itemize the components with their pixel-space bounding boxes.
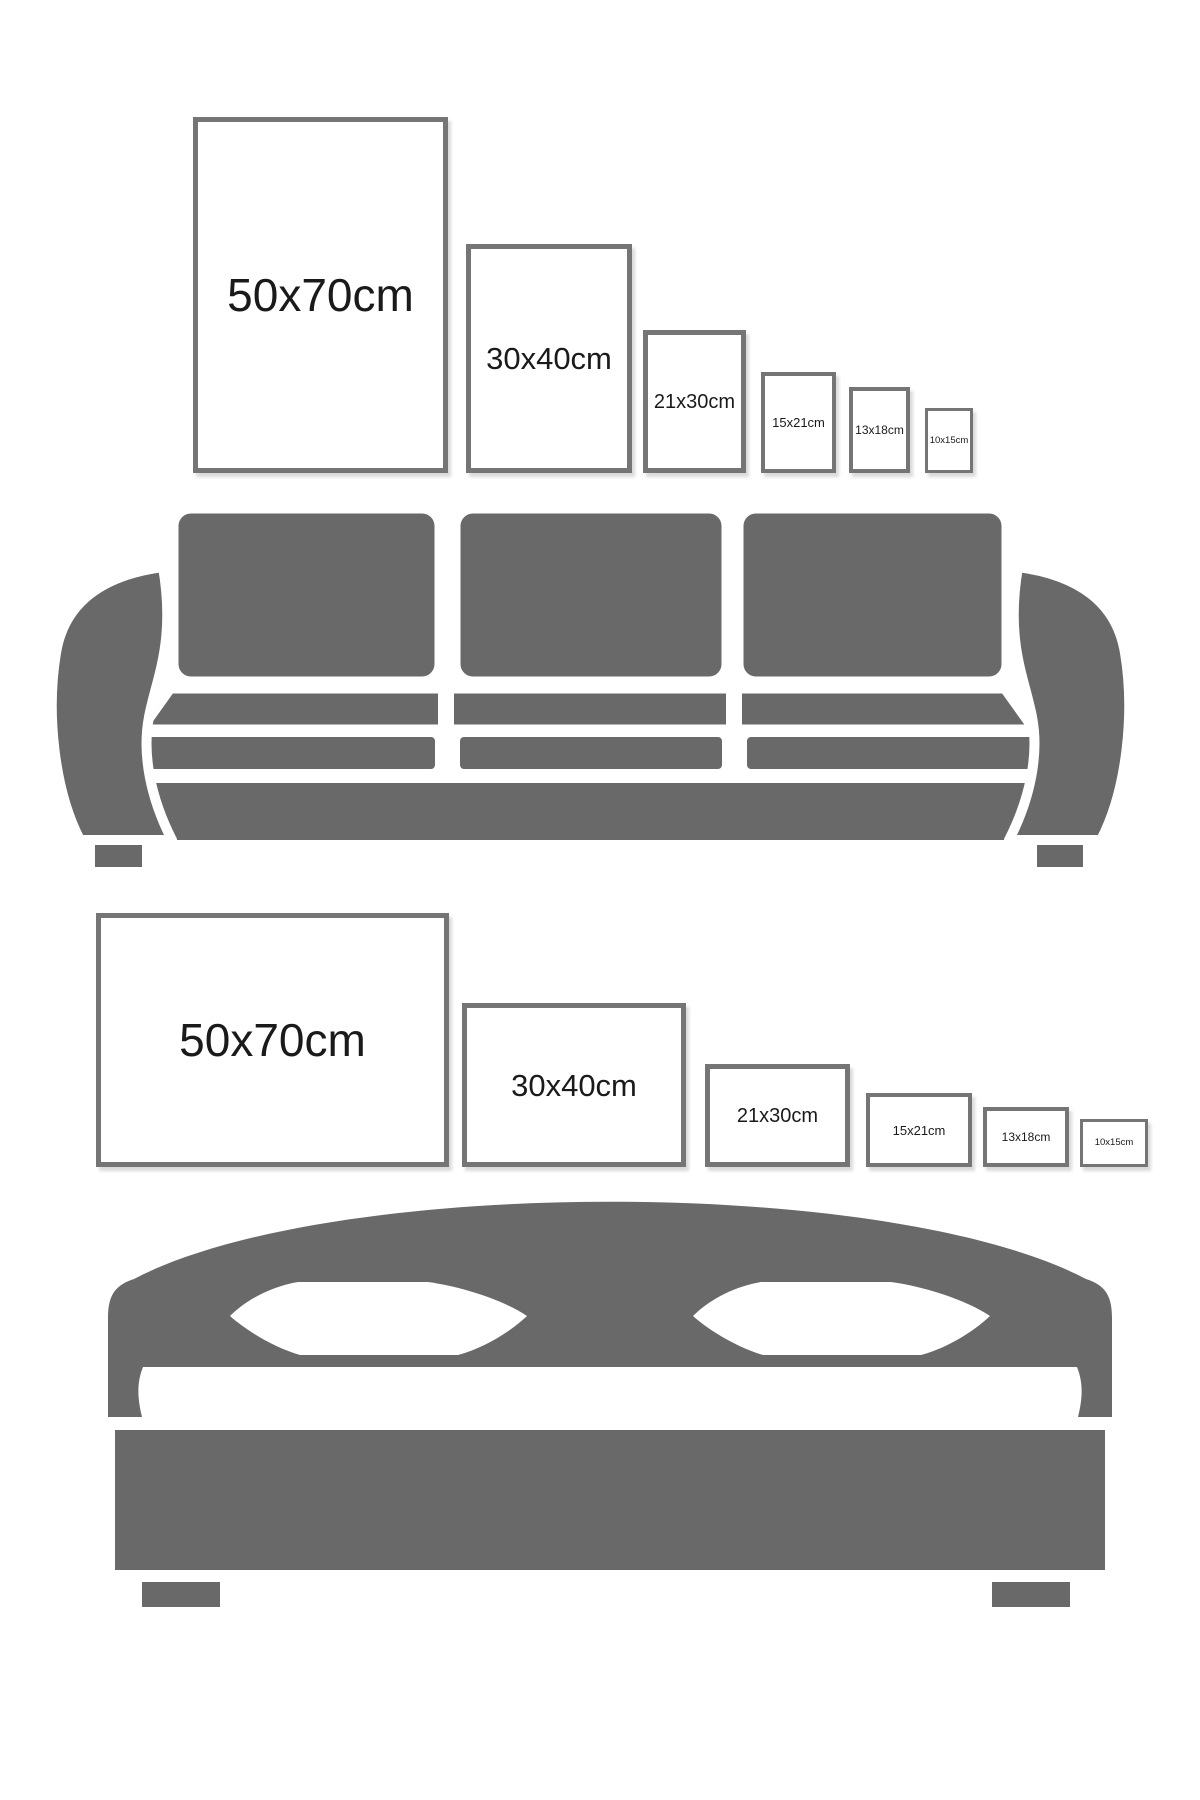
sofa-back-cushion — [173, 508, 440, 682]
sofa-arm-left — [52, 567, 172, 840]
sofa-seat-deck — [140, 688, 1035, 730]
size-frame-13x18-portrait: 13x18cm — [849, 387, 910, 473]
poster-size-guide-infographic: 50x70cm 30x40cm 21x30cm 15x21cm 13x18cm … — [0, 0, 1200, 1800]
size-frame-15x21-portrait: 15x21cm — [761, 372, 836, 473]
size-label-10x15: 10x15cm — [930, 436, 969, 446]
bed-leg-left — [142, 1582, 220, 1607]
size-label-21x30: 21x30cm — [737, 1106, 818, 1126]
size-label-15x21: 15x21cm — [893, 1124, 946, 1137]
sofa-seat-rail — [137, 732, 440, 774]
sofa-base — [92, 783, 1078, 840]
size-label-50x70: 50x70cm — [179, 1017, 366, 1063]
size-label-15x21: 15x21cm — [772, 416, 825, 429]
size-frame-13x18-landscape: 13x18cm — [983, 1107, 1069, 1167]
size-frame-21x30-landscape: 21x30cm — [705, 1064, 850, 1167]
sofa-seat-rail — [455, 732, 727, 774]
size-label-10x15: 10x15cm — [1095, 1138, 1134, 1148]
bed-leg-right — [992, 1582, 1070, 1607]
sofa-arm-right — [1009, 567, 1129, 840]
size-frame-30x40-portrait: 30x40cm — [466, 244, 632, 473]
size-label-13x18: 13x18cm — [1002, 1131, 1051, 1143]
size-frame-30x40-landscape: 30x40cm — [462, 1003, 686, 1167]
size-label-30x40: 30x40cm — [486, 343, 612, 374]
bed-post-right — [1077, 1367, 1112, 1417]
size-label-30x40: 30x40cm — [511, 1070, 637, 1101]
sofa-deck-divider — [726, 678, 742, 736]
sofa-back-cushion — [455, 508, 727, 682]
size-label-21x30: 21x30cm — [654, 392, 735, 412]
bed-illustration — [90, 1190, 1130, 1610]
size-frame-21x30-portrait: 21x30cm — [643, 330, 746, 473]
sofa-illustration — [30, 495, 1140, 875]
size-frame-10x15-landscape: 10x15cm — [1080, 1119, 1148, 1167]
size-label-50x70: 50x70cm — [227, 272, 414, 318]
sofa-back-cushion — [738, 508, 1007, 682]
size-frame-50x70-landscape: 50x70cm — [96, 913, 449, 1167]
sofa-seat-rail — [742, 732, 1040, 774]
bed-headboard — [108, 1202, 1112, 1367]
sofa-deck-divider — [438, 678, 454, 736]
size-frame-10x15-portrait: 10x15cm — [925, 408, 973, 473]
bed-base — [115, 1430, 1105, 1570]
size-frame-15x21-landscape: 15x21cm — [866, 1093, 972, 1167]
bed-post-left — [108, 1367, 143, 1417]
size-label-13x18: 13x18cm — [855, 424, 904, 436]
size-frame-50x70-portrait: 50x70cm — [193, 117, 448, 473]
